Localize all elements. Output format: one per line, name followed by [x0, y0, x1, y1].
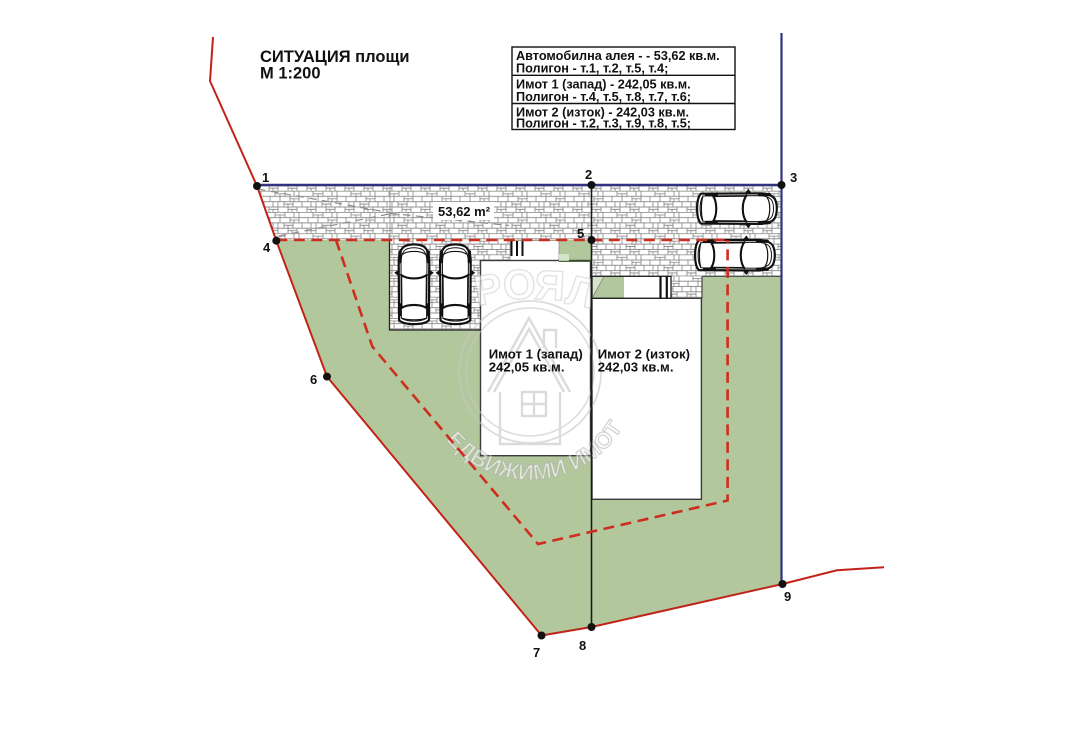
svg-text:2: 2	[585, 167, 592, 182]
svg-text:242,03 кв.м.: 242,03 кв.м.	[598, 360, 674, 375]
svg-text:3: 3	[790, 170, 797, 185]
svg-text:Полигон - т.1, т.2, т.5, т.4;: Полигон - т.1, т.2, т.5, т.4;	[516, 62, 668, 76]
svg-text:8: 8	[579, 638, 586, 653]
svg-text:53,62 m²: 53,62 m²	[438, 204, 491, 219]
svg-text:О: О	[501, 260, 537, 309]
svg-text:СИТУАЦИЯ площи: СИТУАЦИЯ площи	[260, 48, 410, 66]
svg-text:4: 4	[263, 240, 271, 255]
svg-text:1: 1	[262, 170, 269, 185]
svg-text:242,05 кв.м.: 242,05 кв.м.	[489, 360, 565, 375]
svg-text:М 1:200: М 1:200	[260, 65, 321, 83]
svg-text:Полигон - т.2, т.3, т.9, т.8,: Полигон - т.2, т.3, т.9, т.8, т.5;	[516, 117, 691, 131]
svg-text:Полигон - т.4, т.5, т.8, т.7,: Полигон - т.4, т.5, т.8, т.7, т.6;	[516, 90, 691, 104]
svg-text:7: 7	[533, 645, 540, 660]
svg-text:5: 5	[577, 226, 584, 241]
svg-text:Я: Я	[534, 261, 567, 310]
svg-text:6: 6	[310, 372, 317, 387]
svg-text:9: 9	[784, 589, 791, 604]
